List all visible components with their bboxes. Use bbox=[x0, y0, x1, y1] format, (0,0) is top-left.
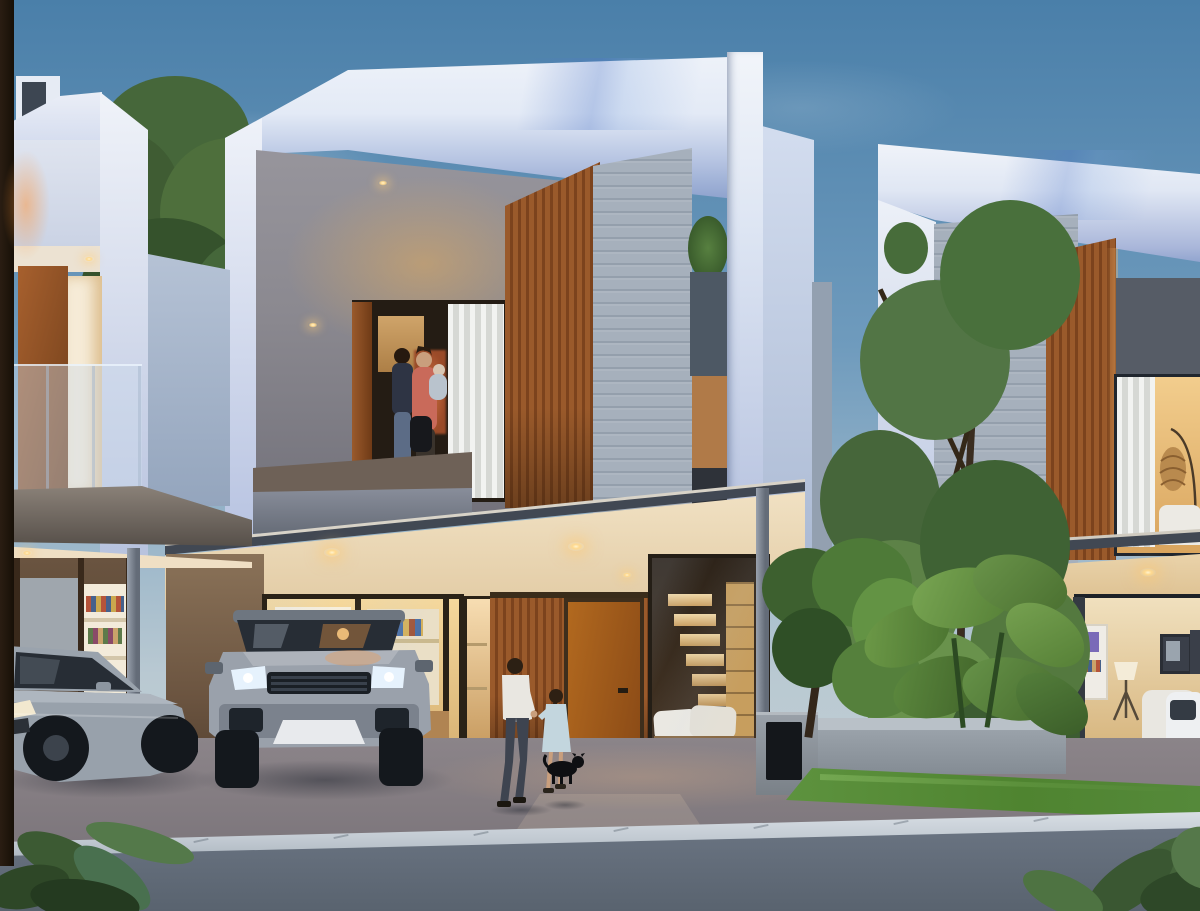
walking-man-and-girl bbox=[486, 652, 586, 816]
downlight bbox=[84, 256, 94, 262]
niche-panel-dark bbox=[690, 272, 728, 376]
foreground-leaves-left bbox=[0, 800, 210, 911]
niche-shrub bbox=[688, 216, 728, 280]
framed-picture bbox=[1160, 634, 1192, 674]
suv-window bbox=[1170, 700, 1196, 720]
niche-panel-wood bbox=[692, 376, 728, 468]
glass-balustrade bbox=[0, 364, 142, 492]
framed-picture bbox=[1190, 630, 1200, 674]
downlight bbox=[378, 180, 388, 186]
right-upper-soffit bbox=[1116, 278, 1200, 376]
shelf-line bbox=[467, 687, 487, 690]
downlight bbox=[324, 548, 340, 557]
stone-niche bbox=[688, 216, 728, 512]
downlight bbox=[22, 550, 32, 556]
downlight bbox=[308, 322, 318, 328]
door-handle bbox=[618, 688, 628, 693]
foreground-leaves-right bbox=[990, 818, 1200, 911]
warm-window-glow bbox=[2, 150, 50, 260]
foliage-blob bbox=[940, 200, 1080, 350]
timber-box-shade bbox=[505, 408, 600, 508]
balustrade-post bbox=[92, 366, 95, 492]
right-upper-window bbox=[1114, 374, 1200, 556]
balustrade-post bbox=[138, 366, 141, 492]
downlight bbox=[622, 572, 632, 578]
books bbox=[86, 596, 124, 612]
shelf-line bbox=[467, 643, 487, 646]
balustrade-post bbox=[46, 366, 49, 492]
silver-sedan bbox=[0, 642, 198, 794]
curtain bbox=[1117, 377, 1155, 547]
downlight bbox=[1140, 568, 1156, 577]
small-black-dog bbox=[542, 753, 590, 785]
picture-art bbox=[1166, 641, 1180, 661]
left-side-wall bbox=[148, 246, 230, 506]
downlight bbox=[568, 542, 584, 551]
foreground-tree-trunk bbox=[0, 0, 14, 866]
architectural-render bbox=[0, 0, 1200, 911]
shelf-line bbox=[82, 618, 132, 622]
center-roof-reflection bbox=[470, 58, 750, 130]
tropical-planting bbox=[852, 548, 1088, 764]
silver-suv bbox=[203, 608, 435, 790]
